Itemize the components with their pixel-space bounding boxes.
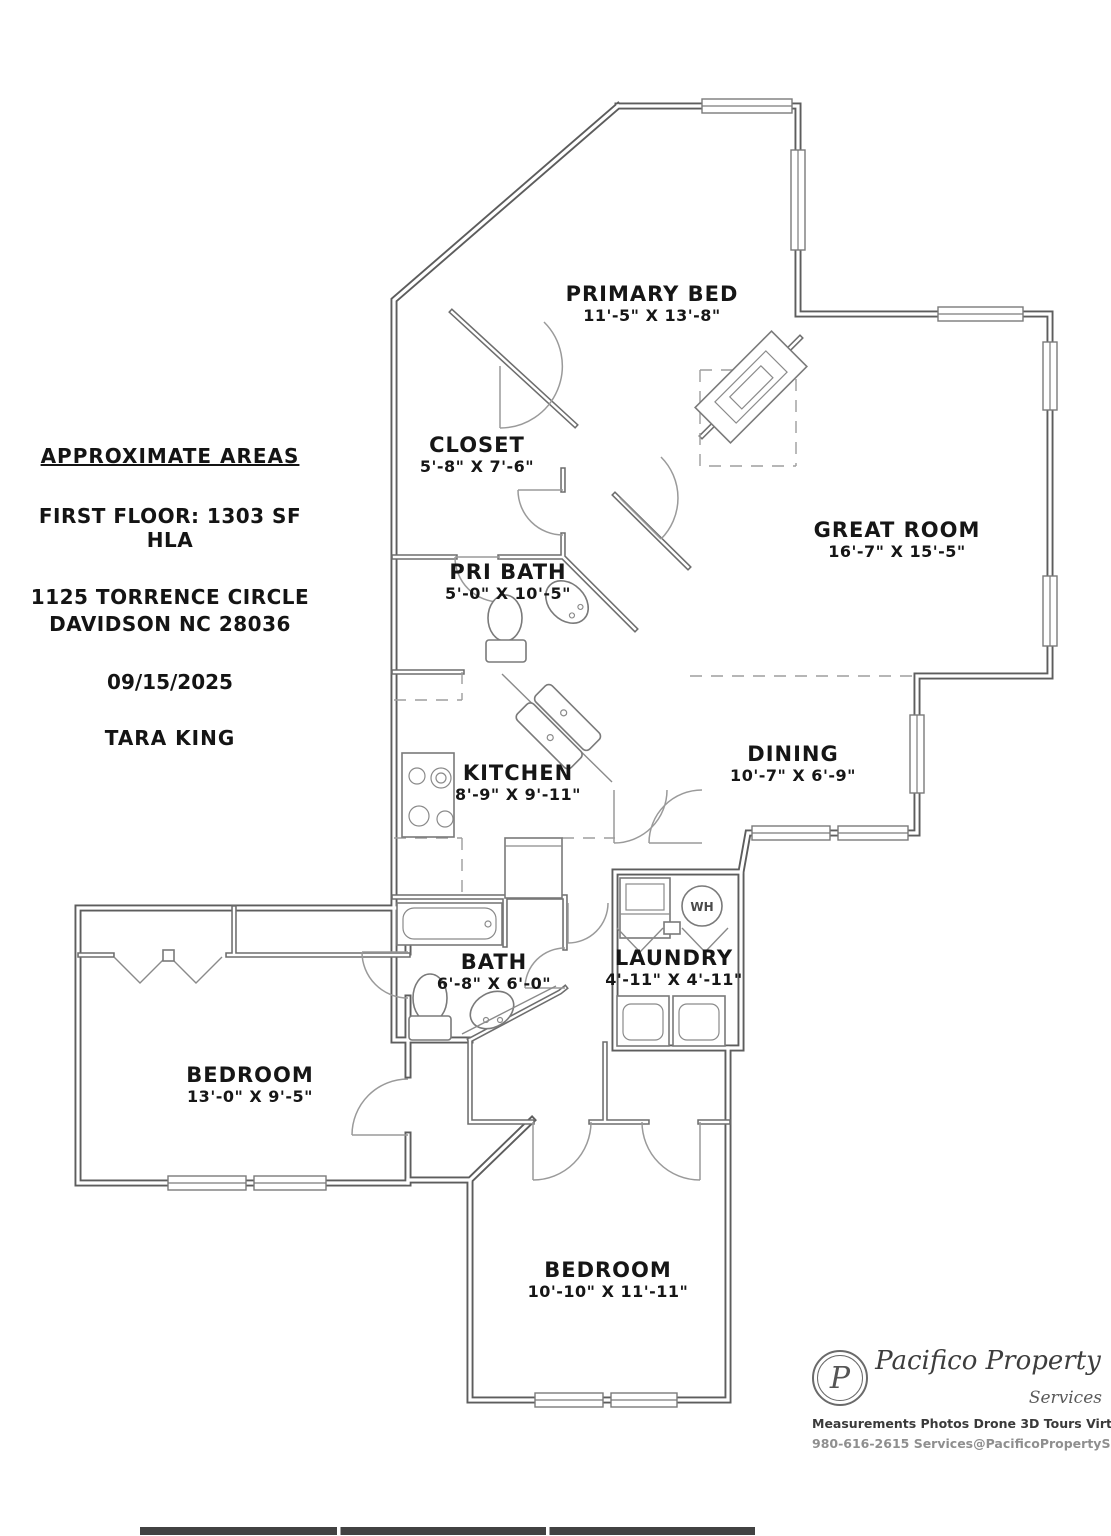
room-dims: 13'-0" X 9'-5" bbox=[186, 1087, 314, 1106]
room-dims: 11'-5" X 13'-8" bbox=[566, 306, 739, 325]
info-panel: APPROXIMATE AREAS FIRST FLOOR: 1303 SF H… bbox=[18, 444, 322, 750]
brand-company-name: Pacifico Property bbox=[874, 1346, 1102, 1376]
brand-logo-icon: P bbox=[812, 1350, 868, 1406]
floor-plan-page: WH PRIMARY BED 11'-5" X 13'-8" CLOSET 5'… bbox=[0, 0, 1111, 1536]
water-heater-label: WH bbox=[690, 900, 713, 914]
room-name: BEDROOM bbox=[528, 1258, 689, 1282]
room-label-great-room: GREAT ROOM 16'-7" X 15'-5" bbox=[814, 518, 981, 561]
room-dims: 10'-10" X 11'-11" bbox=[528, 1282, 689, 1301]
room-name: CLOSET bbox=[420, 433, 534, 457]
brand-contact-line: 980-616-2615 Services@PacificoPropertySe… bbox=[812, 1436, 1102, 1451]
info-address-line2: DAVIDSON NC 28036 bbox=[18, 611, 322, 638]
info-date: 09/15/2025 bbox=[18, 670, 322, 694]
room-name: GREAT ROOM bbox=[814, 518, 981, 542]
room-label-bedroom-bottom: BEDROOM 10'-10" X 11'-11" bbox=[528, 1258, 689, 1301]
room-label-primary-bed: PRIMARY BED 11'-5" X 13'-8" bbox=[566, 282, 739, 325]
kitchen-sink bbox=[514, 682, 602, 770]
room-dims: 4'-11" X 4'-11" bbox=[605, 970, 743, 989]
room-dims: 6'-8" X 6'-0" bbox=[437, 974, 551, 993]
brand-services-line: Measurements Photos Drone 3D Tours Virtu… bbox=[812, 1416, 1102, 1431]
room-label-kitchen: KITCHEN 8'-9" X 9'-11" bbox=[455, 761, 581, 804]
room-name: LAUNDRY bbox=[605, 946, 743, 970]
room-dims: 8'-9" X 9'-11" bbox=[455, 785, 581, 804]
info-title: APPROXIMATE AREAS bbox=[18, 444, 322, 468]
room-name: BATH bbox=[437, 950, 551, 974]
room-dims: 5'-0" X 10'-5" bbox=[445, 584, 571, 603]
room-label-laundry: LAUNDRY 4'-11" X 4'-11" bbox=[605, 946, 743, 989]
info-address-line1: 1125 TORRENCE CIRCLE bbox=[18, 584, 322, 611]
room-label-closet: CLOSET 5'-8" X 7'-6" bbox=[420, 433, 534, 476]
room-label-dining: DINING 10'-7" X 6'-9" bbox=[730, 742, 856, 785]
brand-monogram: P bbox=[817, 1355, 863, 1401]
room-name: PRI BATH bbox=[445, 560, 571, 584]
bottom-edge-strip bbox=[140, 1527, 755, 1535]
kitchen-stove bbox=[402, 753, 454, 837]
room-dims: 5'-8" X 7'-6" bbox=[420, 457, 534, 476]
info-agent: TARA KING bbox=[18, 726, 322, 750]
room-label-bedroom-left: BEDROOM 13'-0" X 9'-5" bbox=[186, 1063, 314, 1106]
room-name: PRIMARY BED bbox=[566, 282, 739, 306]
room-name: DINING bbox=[730, 742, 856, 766]
room-label-bath: BATH 6'-8" X 6'-0" bbox=[437, 950, 551, 993]
brand-tagline: Services bbox=[874, 1388, 1102, 1408]
room-name: BEDROOM bbox=[186, 1063, 314, 1087]
room-label-pri-bath: PRI BATH 5'-0" X 10'-5" bbox=[445, 560, 571, 603]
kitchen-pantry bbox=[505, 838, 562, 898]
room-dims: 10'-7" X 6'-9" bbox=[730, 766, 856, 785]
info-floor-area: FIRST FLOOR: 1303 SF HLA bbox=[18, 504, 322, 552]
room-name: KITCHEN bbox=[455, 761, 581, 785]
room-dims: 16'-7" X 15'-5" bbox=[814, 542, 981, 561]
bedroom-closet-bifold-doors bbox=[114, 950, 222, 983]
